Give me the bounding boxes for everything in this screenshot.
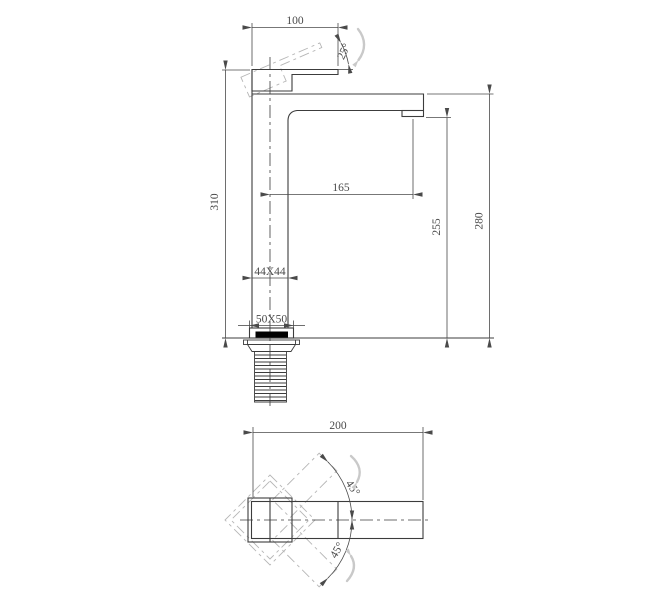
dim-spout-top-height: 280 — [427, 94, 494, 338]
dim-spout-reach-label: 165 — [332, 182, 350, 194]
dim-handle-length-label: 100 — [286, 15, 304, 27]
lock-nut — [248, 345, 296, 352]
dim-body-section: 44X44 — [252, 266, 288, 278]
rotation-swoosh-front — [358, 29, 364, 60]
aerator — [402, 111, 424, 117]
dim-handle-length: 100 — [252, 15, 338, 66]
dim-spout-top-height-label: 280 — [474, 212, 486, 230]
dim-base-section-label: 50X50 — [256, 314, 288, 326]
dim-base-section: 50X50 — [238, 314, 305, 329]
base-and-mounting — [222, 328, 494, 402]
faucet-technical-drawing: 100 25° 310 165 255 — [0, 0, 670, 600]
dim-total-height-label: 310 — [209, 193, 221, 211]
dim-swing-upper-label: 45° — [343, 478, 362, 498]
dim-spout-reach: 165 — [270, 119, 413, 199]
front-view: 100 25° 310 165 255 — [209, 15, 494, 409]
washer-plate — [244, 340, 300, 345]
dim-outlet-height: 255 — [426, 118, 451, 339]
dim-handle-swing: 45° 45° — [328, 456, 362, 581]
top-view: 200 45° 45° — [225, 420, 432, 587]
body-and-spout — [252, 70, 424, 329]
rotation-swoosh-lower — [347, 556, 354, 581]
threaded-stud — [255, 352, 287, 403]
dim-outlet-height-label: 255 — [431, 218, 443, 236]
dim-body-section-label: 44X44 — [254, 266, 286, 278]
dim-overall-length-label: 200 — [329, 420, 347, 432]
dim-total-height: 310 — [209, 70, 250, 338]
rubber-gasket — [256, 332, 289, 339]
handle-lever — [252, 70, 338, 92]
drawing-canvas: 100 25° 310 165 255 — [0, 0, 670, 600]
dim-handle-angle: 25° — [335, 29, 364, 70]
dim-overall-length: 200 — [253, 420, 423, 500]
dim-swing-lower-label: 45° — [328, 540, 347, 560]
